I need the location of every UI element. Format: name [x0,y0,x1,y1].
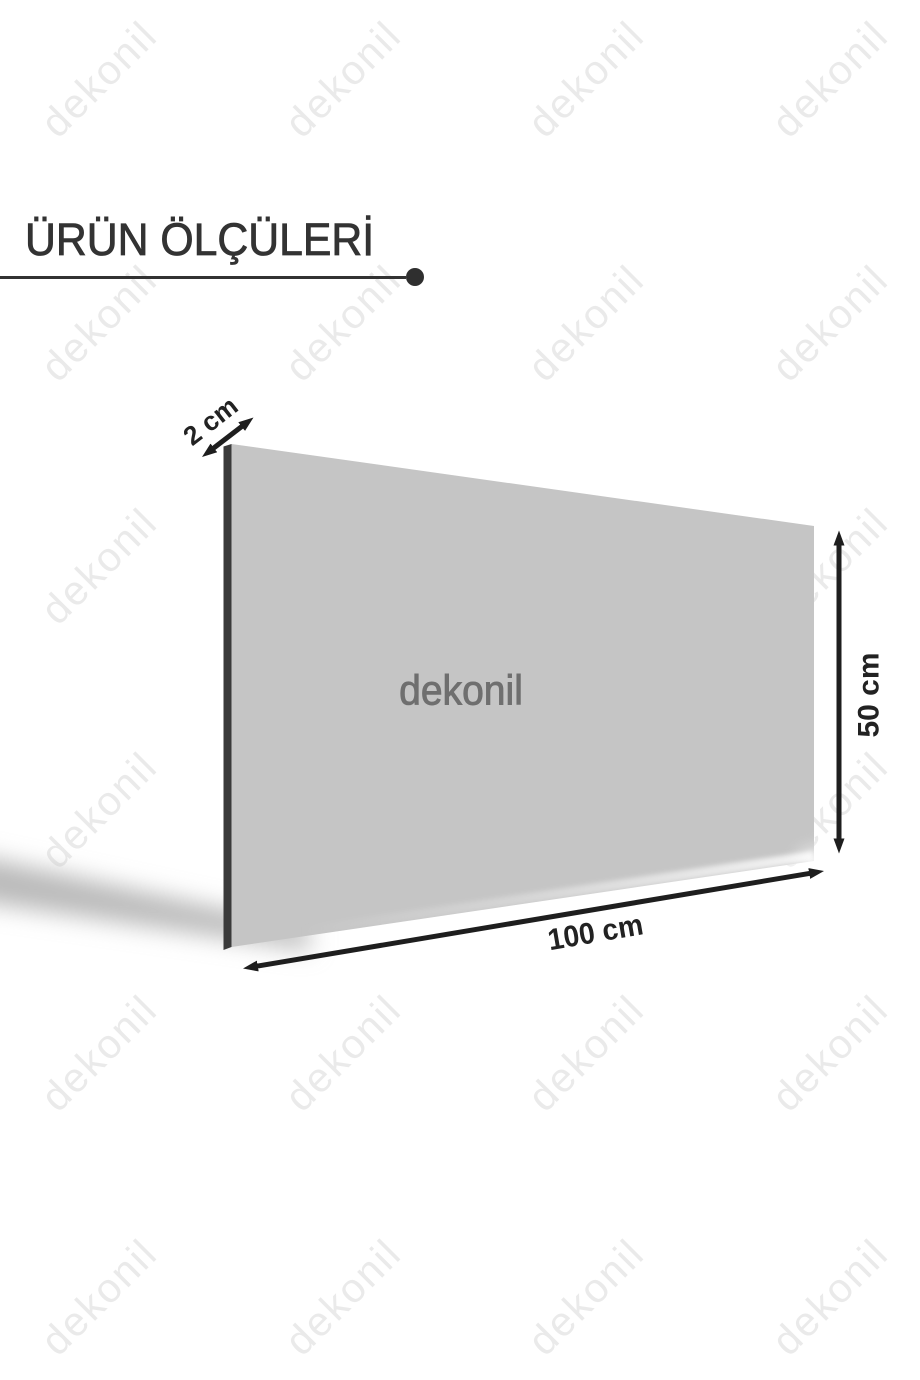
svg-text:2 cm: 2 cm [177,391,243,452]
svg-text:dekonil: dekonil [399,666,523,714]
svg-text:50 cm: 50 cm [853,652,886,737]
